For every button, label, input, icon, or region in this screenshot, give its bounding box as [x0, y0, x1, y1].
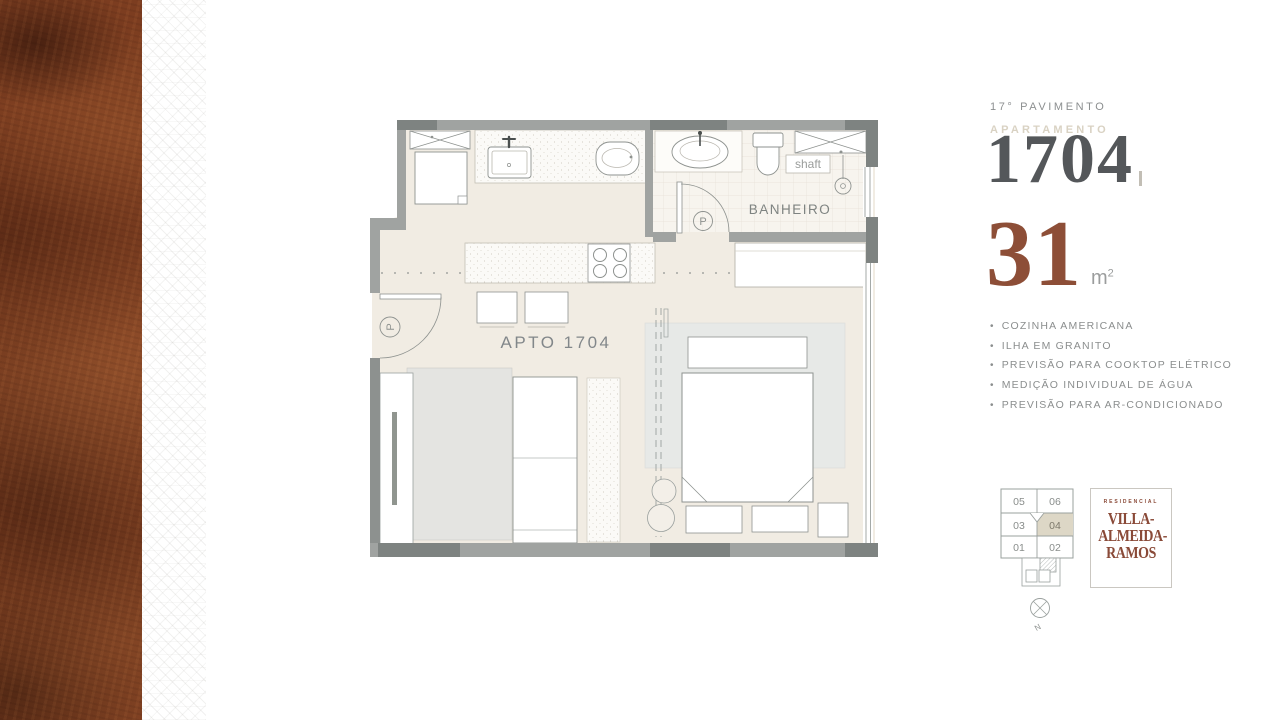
keyplan-svg: 05 06 03 04 01 02 N: [995, 483, 1087, 635]
second-sink-icon: [596, 142, 639, 175]
shaft-label-box: shaft: [786, 155, 830, 173]
feature-text: PREVISÃO PARA COOKTOP ELÉTRICO: [1002, 356, 1232, 375]
area-unit-exponent: 2: [1108, 267, 1114, 279]
feature-item: •PREVISÃO PARA AR-CONDICIONADO: [990, 396, 1232, 416]
keyplan-unit-02: 02: [1049, 542, 1061, 554]
feature-list: •COZINHA AMERICANA •ILHA EM GRANITO •PRE…: [990, 317, 1232, 416]
elevator-icon: [1039, 570, 1050, 582]
compass-icon: N: [1031, 599, 1050, 633]
bullet-icon: •: [990, 397, 995, 416]
brand-line: ALMEIDA-: [1098, 527, 1164, 544]
nightstand: [818, 503, 848, 537]
feature-item: •MEDIÇÃO INDIVIDUAL DE ÁGUA: [990, 376, 1232, 396]
geometric-pattern-strip: [142, 0, 206, 720]
bullet-icon: •: [990, 357, 995, 376]
keyplan-unit-03: 03: [1013, 520, 1025, 532]
brand-line: RAMOS: [1098, 544, 1164, 561]
area-value: 31: [986, 210, 1082, 298]
entry-door-marker: P: [385, 323, 397, 330]
keyplan-unit-05: 05: [1013, 496, 1025, 508]
keyplan-grid: 05 06 03 04 01 02: [1001, 489, 1073, 558]
area-row: 31 m2: [986, 210, 1114, 298]
apartment-number: 1704: [986, 128, 1134, 192]
area-unit-m: m: [1091, 267, 1108, 289]
feature-text: ILHA EM GRANITO: [1002, 337, 1112, 356]
bathroom-door-marker: P: [699, 216, 706, 228]
bullet-icon: •: [990, 318, 995, 337]
textured-throw: [587, 378, 620, 542]
floor-label: 17° PAVIMENTO: [990, 101, 1106, 113]
bed-mattress: [682, 373, 813, 502]
keyplan-unit-01: 01: [1013, 542, 1025, 554]
brand-lines: VILLA- ALMEIDA- RAMOS: [1091, 510, 1171, 561]
apartment-number-row: 1704: [986, 128, 1142, 192]
keyplan-unit-04: 04: [1049, 520, 1061, 532]
bathroom-window: [863, 167, 873, 217]
fridge-icon: [415, 152, 467, 204]
area-unit: m2: [1091, 267, 1114, 290]
brand-logo: RESIDENCIAL VILLA- ALMEIDA- RAMOS: [1090, 488, 1172, 588]
apartment-number-tick: [1139, 171, 1142, 186]
feature-item: •COZINHA AMERICANA: [990, 317, 1232, 337]
brand-line: VILLA-: [1098, 510, 1164, 527]
bed-headboard: [688, 337, 807, 368]
wardrobe: [407, 368, 512, 540]
feature-text: MEDIÇÃO INDIVIDUAL DE ÁGUA: [1002, 376, 1194, 395]
elevator-icon: [1026, 570, 1037, 582]
sofa-icon: [513, 377, 577, 543]
cooktop-icon: [588, 244, 630, 282]
bedroom-window: [863, 263, 873, 543]
bullet-icon: •: [990, 377, 995, 396]
shaft-label: shaft: [795, 157, 822, 171]
bedroom-desk: [735, 243, 866, 287]
compass-north-label: N: [1033, 622, 1043, 633]
brand-prefix: RESIDENCIAL: [1091, 499, 1171, 505]
feature-text: PREVISÃO PARA AR-CONDICIONADO: [1002, 396, 1224, 415]
bullet-icon: •: [990, 338, 995, 357]
keyplan-core: [1022, 558, 1060, 586]
feature-item: •ILHA EM GRANITO: [990, 337, 1232, 357]
bathroom-sink-icon: [655, 131, 742, 172]
rust-texture-strip: [0, 0, 142, 720]
shaft-icon: [795, 131, 866, 154]
floor-plan-svg: shaft BANHEIRO: [365, 105, 885, 575]
keyplan-unit-06: 06: [1049, 496, 1061, 508]
bathroom-label: BANHEIRO: [749, 202, 832, 217]
feature-text: COZINHA AMERICANA: [1002, 317, 1134, 336]
unit-label: APTO 1704: [500, 333, 611, 352]
washer-icon: [410, 131, 470, 149]
feature-item: •PREVISÃO PARA COOKTOP ELÉTRICO: [990, 356, 1232, 376]
